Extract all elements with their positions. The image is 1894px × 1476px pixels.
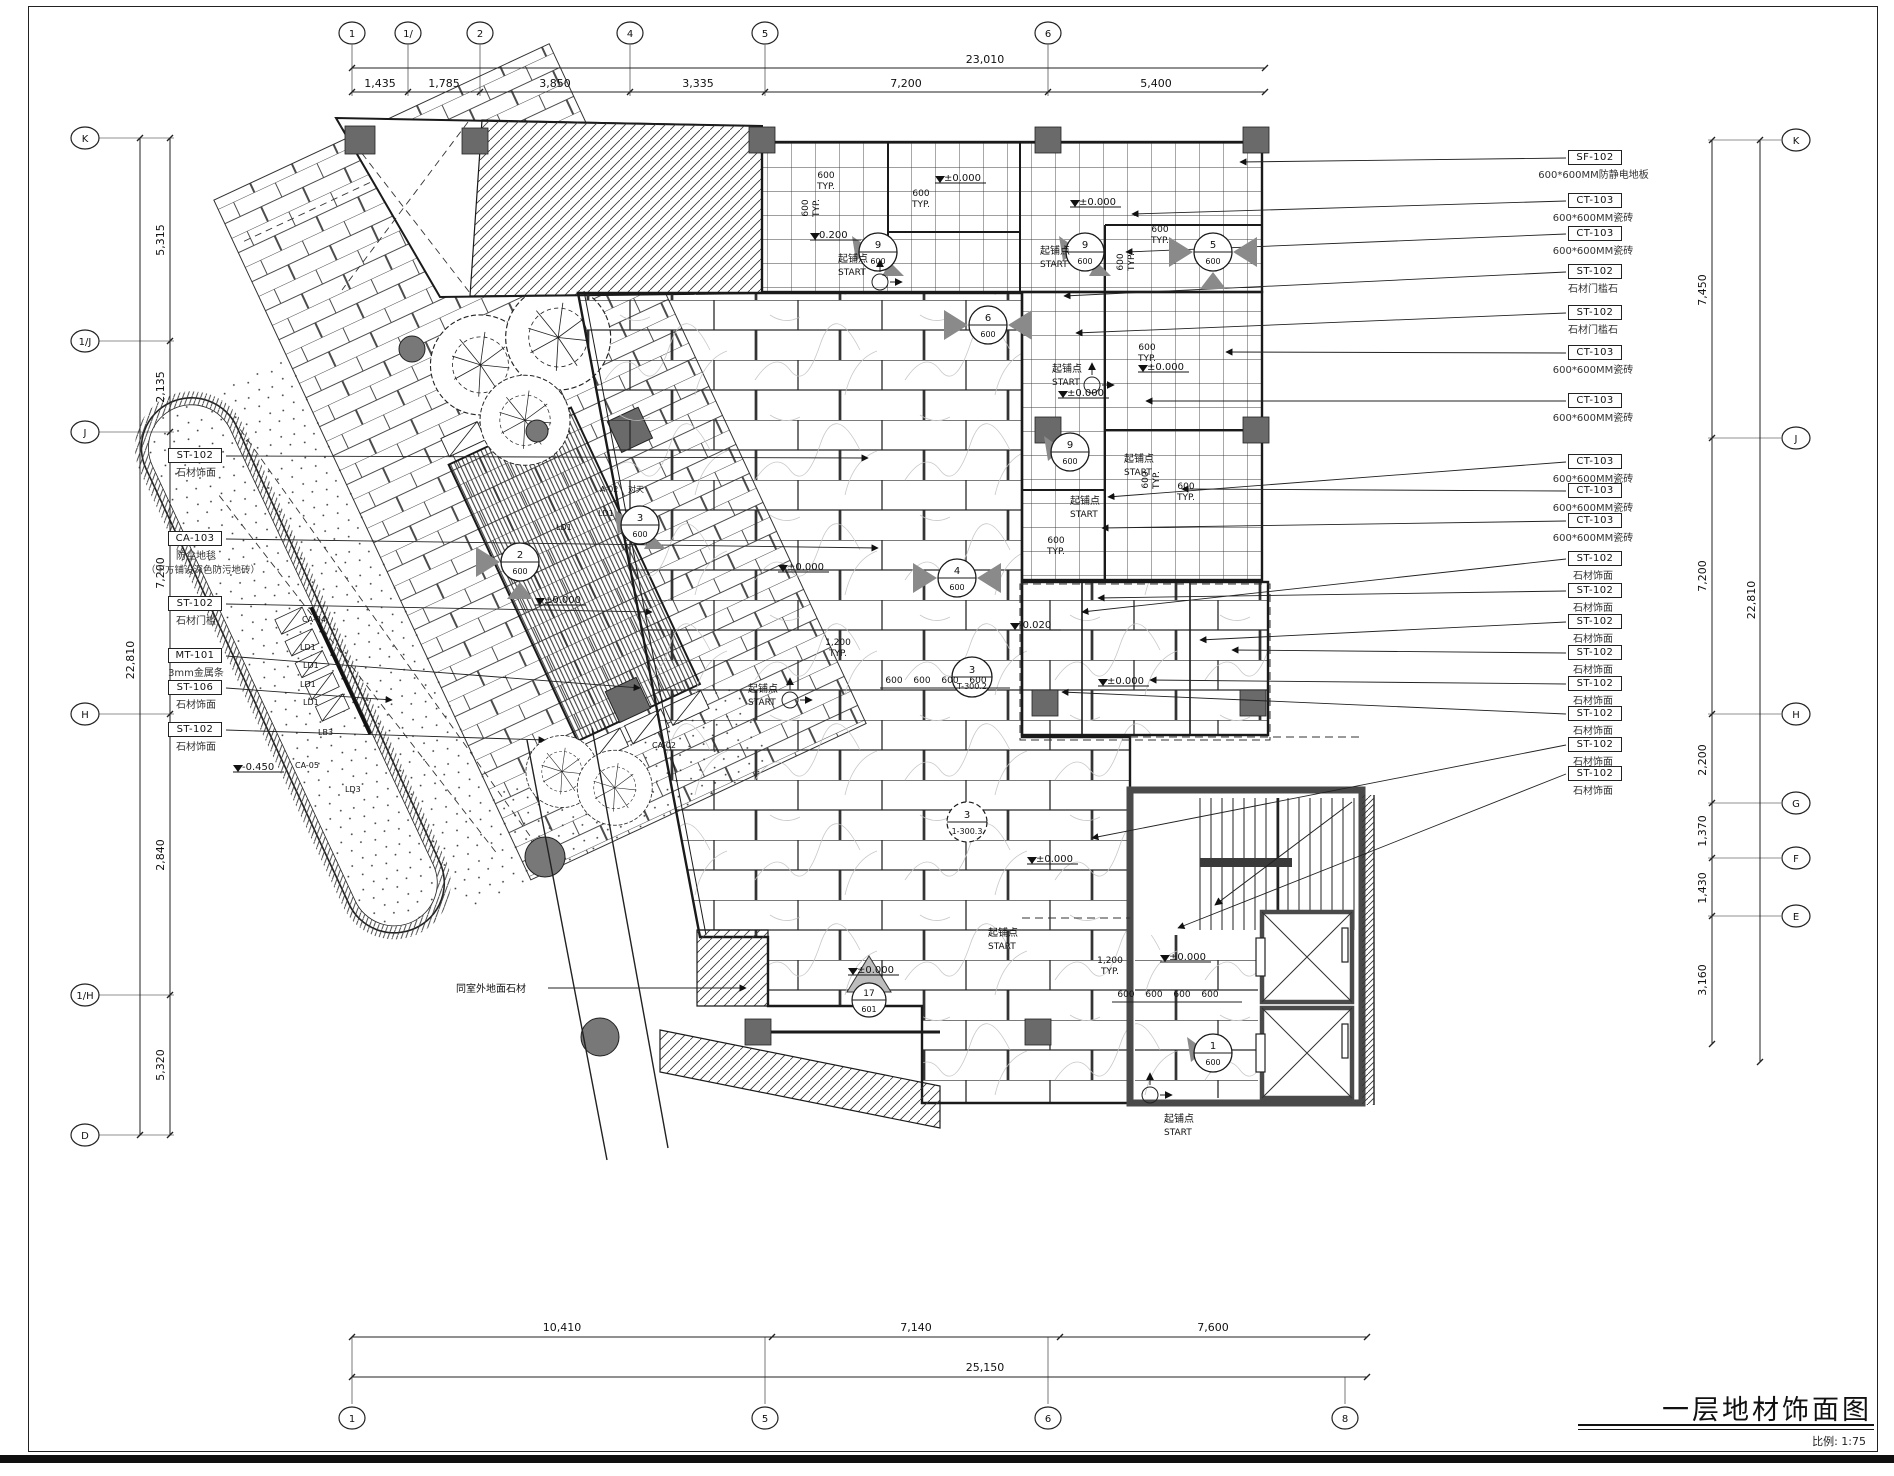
svg-text:1-300.3: 1-300.3 bbox=[952, 827, 983, 836]
svg-text:600: 600 bbox=[949, 583, 964, 592]
svg-text:CA-02: CA-02 bbox=[652, 741, 676, 750]
svg-text:600: 600 bbox=[1205, 257, 1220, 266]
svg-text:3: 3 bbox=[964, 810, 970, 821]
svg-text:起铺点: 起铺点 bbox=[1070, 494, 1100, 507]
svg-text:对天: 对天 bbox=[628, 484, 644, 494]
svg-text:0.200: 0.200 bbox=[819, 230, 848, 241]
finish-desc: 石材饰面 bbox=[1528, 630, 1658, 645]
svg-text:600: 600 bbox=[980, 330, 995, 339]
svg-text:START: START bbox=[838, 268, 866, 278]
svg-text:起铺点: 起铺点 bbox=[1052, 362, 1082, 375]
svg-text:5,400: 5,400 bbox=[1140, 77, 1172, 90]
svg-text:600: 600 bbox=[1201, 990, 1218, 1000]
svg-text:LD1: LD1 bbox=[556, 523, 572, 532]
svg-text:A-02: A-02 bbox=[600, 485, 618, 494]
svg-text:6: 6 bbox=[985, 313, 991, 324]
finish-tag: CT-103 bbox=[1568, 226, 1622, 241]
title-underline bbox=[1578, 1429, 1874, 1430]
svg-text:600: 600 bbox=[512, 567, 527, 576]
finish-tag: ST-102 bbox=[1568, 737, 1622, 752]
finish-tag: CA-103 bbox=[168, 531, 222, 546]
finish-tag: ST-102 bbox=[1568, 551, 1622, 566]
finish-desc: 防尘地毯 bbox=[136, 547, 256, 562]
exterior-stone-note: 同室外地面石材 bbox=[456, 982, 526, 995]
svg-text:3,160: 3,160 bbox=[1696, 964, 1709, 996]
svg-text:5: 5 bbox=[762, 1414, 768, 1425]
drawing-scale: 比例: 1:75 bbox=[1570, 1433, 1872, 1449]
finish-desc: 石材饰面 bbox=[136, 464, 256, 479]
finish-tag: CT-103 bbox=[1568, 513, 1622, 528]
svg-text:1,785: 1,785 bbox=[428, 77, 460, 90]
svg-text:600: 600 bbox=[1205, 1058, 1220, 1067]
svg-text:600: 600 bbox=[1151, 225, 1168, 235]
svg-text:1: 1 bbox=[1210, 1041, 1216, 1052]
svg-text:H: H bbox=[81, 710, 89, 721]
svg-text:TYP.: TYP. bbox=[816, 182, 835, 192]
fin­ish-tag: ST-102 bbox=[1568, 645, 1622, 660]
finish-desc: 600*600MM瓷砖 bbox=[1528, 209, 1658, 224]
finish-tag: ST-102 bbox=[1568, 583, 1622, 598]
finish-desc: 3mm金属条 bbox=[136, 664, 256, 679]
finish-desc: 石材饰面 bbox=[1528, 692, 1658, 707]
svg-text:7,600: 7,600 bbox=[1197, 1321, 1229, 1334]
svg-text:10,410: 10,410 bbox=[543, 1321, 582, 1334]
svg-text:TYP.: TYP. bbox=[1176, 493, 1195, 503]
finish-tag: CT-103 bbox=[1568, 393, 1622, 408]
svg-text:TYP.: TYP. bbox=[812, 199, 822, 218]
finish-desc: 600*600MM瓷砖 bbox=[1528, 361, 1658, 376]
drawing-title: 一层地材饰面图 bbox=[1570, 1388, 1872, 1427]
svg-text:TYP.: TYP. bbox=[828, 649, 847, 659]
svg-text:TYP.: TYP. bbox=[911, 200, 930, 210]
svg-text:TYP.: TYP. bbox=[1100, 967, 1119, 977]
finish-desc: 石材饰面 bbox=[1528, 567, 1658, 582]
svg-text:600: 600 bbox=[885, 676, 902, 686]
svg-text:600: 600 bbox=[1141, 471, 1151, 488]
svg-text:600: 600 bbox=[1062, 457, 1077, 466]
svg-text:600: 600 bbox=[941, 676, 958, 686]
finish-desc: 石材饰面 bbox=[136, 696, 256, 711]
finish-tag: ST-102 bbox=[1568, 676, 1622, 691]
svg-text:TYP.: TYP. bbox=[1150, 236, 1169, 246]
finish-tag: SF-102 bbox=[1568, 150, 1622, 165]
finish-desc: 石材饰面 bbox=[1528, 599, 1658, 614]
svg-text:起铺点: 起铺点 bbox=[838, 252, 868, 265]
finish-tag: CT-103 bbox=[1568, 193, 1622, 208]
svg-text:LD1: LD1 bbox=[300, 643, 316, 652]
svg-text:J: J bbox=[83, 428, 87, 439]
svg-text:2: 2 bbox=[477, 29, 483, 40]
svg-text:1: 1 bbox=[349, 29, 355, 40]
svg-text:600: 600 bbox=[1116, 253, 1126, 270]
svg-text:5,315: 5,315 bbox=[154, 224, 167, 256]
svg-text:LD1: LD1 bbox=[598, 509, 614, 518]
finish-tag: ST-102 bbox=[1568, 614, 1622, 629]
svg-text:K: K bbox=[82, 134, 89, 145]
svg-text:7,200: 7,200 bbox=[1696, 560, 1709, 592]
svg-text:7,450: 7,450 bbox=[1696, 274, 1709, 306]
finish-tag: ST-102 bbox=[1568, 766, 1622, 781]
svg-text:G: G bbox=[1792, 799, 1800, 810]
svg-text:起铺点: 起铺点 bbox=[1164, 1112, 1194, 1125]
svg-text:1,430: 1,430 bbox=[1696, 872, 1709, 904]
svg-text:5,320: 5,320 bbox=[154, 1049, 167, 1081]
svg-text:1/: 1/ bbox=[403, 29, 413, 40]
title-underline bbox=[1578, 1424, 1874, 1426]
svg-text:6: 6 bbox=[1045, 29, 1051, 40]
finish-tag: ST-102 bbox=[1568, 264, 1622, 279]
svg-text:2,840: 2,840 bbox=[154, 839, 167, 871]
svg-text:±0.000: ±0.000 bbox=[1147, 362, 1184, 373]
finish-desc: 石材门槛 bbox=[136, 612, 256, 627]
sheet-bottom-band bbox=[0, 1455, 1894, 1463]
svg-text:LD3: LD3 bbox=[345, 785, 361, 794]
svg-text:±0.000: ±0.000 bbox=[544, 595, 581, 606]
svg-text:600: 600 bbox=[913, 676, 930, 686]
svg-text:1: 1 bbox=[349, 1414, 355, 1425]
svg-text:2,200: 2,200 bbox=[1696, 744, 1709, 776]
svg-text:-0.020: -0.020 bbox=[1019, 620, 1051, 631]
svg-text:LD1: LD1 bbox=[303, 661, 319, 670]
svg-text:600: 600 bbox=[969, 676, 986, 686]
svg-text:±0.000: ±0.000 bbox=[1067, 388, 1104, 399]
finish-tag: ST-102 bbox=[1568, 305, 1622, 320]
svg-text:1,435: 1,435 bbox=[364, 77, 396, 90]
svg-text:起铺点: 起铺点 bbox=[748, 682, 778, 695]
svg-text:START: START bbox=[988, 942, 1016, 952]
svg-text:3,850: 3,850 bbox=[539, 77, 571, 90]
svg-text:START: START bbox=[1164, 1128, 1192, 1138]
finish-desc: 600*600MM瓷砖 bbox=[1528, 529, 1658, 544]
finish-tag: CT-103 bbox=[1568, 454, 1622, 469]
finish-desc: 石材饰面 bbox=[1528, 722, 1658, 737]
svg-text:600: 600 bbox=[1177, 482, 1194, 492]
svg-text:9: 9 bbox=[1067, 440, 1073, 451]
svg-text:±0.000: ±0.000 bbox=[787, 562, 824, 573]
svg-text:5: 5 bbox=[1210, 240, 1216, 251]
svg-text:START: START bbox=[748, 698, 776, 708]
svg-text:E: E bbox=[1793, 912, 1799, 923]
svg-text:±0.000: ±0.000 bbox=[857, 965, 894, 976]
svg-text:TYP.: TYP. bbox=[1046, 547, 1065, 557]
svg-text:1/H: 1/H bbox=[76, 991, 93, 1002]
svg-text:600: 600 bbox=[912, 189, 929, 199]
svg-text:600: 600 bbox=[1077, 257, 1092, 266]
finish-desc: 600*600MM瓷砖 bbox=[1528, 242, 1658, 257]
finish-desc: 600*600MM瓷砖 bbox=[1528, 499, 1658, 514]
svg-text:5: 5 bbox=[762, 29, 768, 40]
svg-text:600: 600 bbox=[870, 257, 885, 266]
finish-desc: 石材饰面 bbox=[136, 738, 256, 753]
svg-text:LB3: LB3 bbox=[318, 728, 333, 737]
finish-tag: ST-102 bbox=[168, 448, 222, 463]
finish-tag: ST-102 bbox=[168, 596, 222, 611]
svg-text:600: 600 bbox=[1047, 536, 1064, 546]
svg-text:9: 9 bbox=[1082, 240, 1088, 251]
svg-text:7,140: 7,140 bbox=[900, 1321, 932, 1334]
finish-desc: 石材门槛石 bbox=[1528, 321, 1658, 336]
svg-text:7,200: 7,200 bbox=[890, 77, 922, 90]
svg-text:CA-04: CA-04 bbox=[302, 615, 326, 624]
finish-tag: ST-102 bbox=[168, 722, 222, 737]
svg-text:起铺点: 起铺点 bbox=[1124, 452, 1154, 465]
svg-text:J: J bbox=[1794, 434, 1798, 445]
svg-text:2: 2 bbox=[517, 550, 523, 561]
svg-text:2,135: 2,135 bbox=[154, 371, 167, 403]
svg-text:START: START bbox=[1052, 378, 1080, 388]
svg-text:600: 600 bbox=[1138, 343, 1155, 353]
svg-text:4: 4 bbox=[627, 29, 633, 40]
finish-desc: 600*600MM防静电地板 bbox=[1506, 166, 1681, 181]
finish-tag: ST-102 bbox=[1568, 706, 1622, 721]
svg-text:TYP.: TYP. bbox=[1127, 253, 1137, 272]
drawing-sheet: 23,010 1,435 1,785 3,850 3,335 7,200 5,4… bbox=[0, 0, 1894, 1476]
svg-text:3: 3 bbox=[637, 513, 643, 524]
svg-text:6: 6 bbox=[1045, 1414, 1051, 1425]
svg-text:600: 600 bbox=[817, 171, 834, 181]
svg-text:起铺点: 起铺点 bbox=[988, 926, 1018, 939]
svg-text:START: START bbox=[1040, 260, 1068, 270]
svg-text:1,200: 1,200 bbox=[825, 638, 851, 648]
finish-desc: 600*600MM瓷砖 bbox=[1528, 409, 1658, 424]
svg-text:600: 600 bbox=[632, 530, 647, 539]
svg-text:17: 17 bbox=[863, 989, 874, 999]
finish-tag: CT-103 bbox=[1568, 345, 1622, 360]
svg-text:TYP.: TYP. bbox=[1152, 471, 1162, 490]
svg-text:1,200: 1,200 bbox=[1097, 956, 1123, 966]
finish-desc: 石材饰面 bbox=[1528, 782, 1658, 797]
finish-tag: MT-101 bbox=[168, 648, 222, 663]
svg-text:起铺点: 起铺点 bbox=[1040, 244, 1070, 257]
svg-text:K: K bbox=[1793, 136, 1800, 147]
svg-text:9: 9 bbox=[875, 240, 881, 251]
svg-text:1,370: 1,370 bbox=[1696, 815, 1709, 847]
svg-text:CA-05: CA-05 bbox=[295, 761, 319, 770]
svg-text:601: 601 bbox=[861, 1005, 876, 1014]
finish-tag: ST-106 bbox=[168, 680, 222, 695]
elevator-shaft bbox=[1262, 912, 1352, 1098]
svg-text:F: F bbox=[1793, 854, 1799, 865]
svg-text:±0.000: ±0.000 bbox=[944, 173, 981, 184]
svg-text:600: 600 bbox=[1173, 990, 1190, 1000]
svg-text:-0.450: -0.450 bbox=[242, 762, 274, 773]
finish-desc: （下方铺设深色防污地砖） bbox=[108, 562, 298, 576]
svg-text:25,150: 25,150 bbox=[966, 1361, 1005, 1374]
svg-text:±0.000: ±0.000 bbox=[1036, 854, 1073, 865]
svg-text:H: H bbox=[1792, 710, 1800, 721]
svg-text:22,810: 22,810 bbox=[1745, 581, 1758, 620]
svg-text:8: 8 bbox=[1342, 1414, 1348, 1425]
svg-text:600: 600 bbox=[1145, 990, 1162, 1000]
svg-text:±0.000: ±0.000 bbox=[1169, 952, 1206, 963]
finish-desc: 石材门槛石 bbox=[1528, 280, 1658, 295]
finish-tag: CT-103 bbox=[1568, 483, 1622, 498]
svg-text:START: START bbox=[1070, 510, 1098, 520]
svg-text:600: 600 bbox=[801, 199, 811, 216]
svg-text:4: 4 bbox=[954, 566, 960, 577]
svg-text:3: 3 bbox=[969, 665, 975, 676]
svg-text:1/J: 1/J bbox=[79, 337, 92, 348]
finish-desc: 石材饰面 bbox=[1528, 661, 1658, 676]
svg-text:LD1: LD1 bbox=[300, 680, 316, 689]
svg-text:±0.000: ±0.000 bbox=[1079, 197, 1116, 208]
svg-text:±0.000: ±0.000 bbox=[1107, 676, 1144, 687]
svg-text:600: 600 bbox=[1117, 990, 1134, 1000]
svg-text:23,010: 23,010 bbox=[966, 53, 1005, 66]
svg-text:LD1: LD1 bbox=[303, 698, 319, 707]
svg-text:3,335: 3,335 bbox=[682, 77, 714, 90]
svg-text:D: D bbox=[81, 1131, 89, 1142]
